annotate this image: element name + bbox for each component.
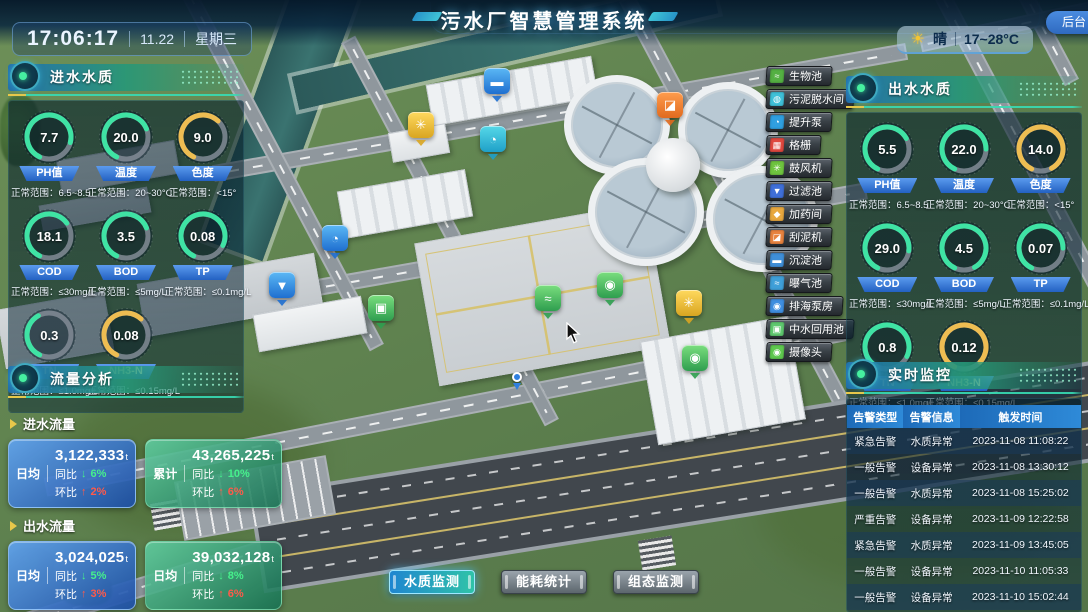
marker-scraper[interactable]: ◪ (657, 92, 683, 118)
gauge-ring: 3.5 (98, 208, 154, 264)
gauge-range: 正常范围：≤0.1mg/L (164, 284, 241, 298)
facility-button-pool[interactable]: ≈生物池 (765, 66, 832, 86)
camera-icon: ◉ (770, 345, 785, 359)
gauge-value: 22.0 (936, 121, 992, 177)
tab-能耗统计[interactable]: 能耗统计 (501, 570, 587, 594)
alarm-cell: 2023-11-10 15:02:44 (960, 584, 1081, 610)
gauge-value: 4.5 (936, 220, 992, 276)
flow-card-tag: 日均 (16, 465, 48, 482)
panel-title: 实时监控 (888, 362, 952, 389)
flow-card-tag: 日均 (16, 567, 48, 584)
marker-camera-2[interactable]: ◉ (682, 345, 708, 371)
fan-icon: ✳ (684, 295, 695, 311)
gauge-label: COD (19, 265, 79, 280)
alarm-row[interactable]: 一般告警水质异常2023-11-08 15:25:02 (847, 480, 1081, 506)
flow-mom: 环比↑2% (55, 484, 128, 500)
gauge-value: 3.5 (98, 208, 154, 264)
gauge-range: 正常范围：<15° (1002, 197, 1079, 211)
gauge-tp: 0.08TP正常范围：≤0.1mg/L (164, 208, 241, 298)
alarm-cell: 2023-11-09 13:45:05 (960, 532, 1081, 558)
flow-yoy: 同比↓8% (192, 568, 274, 584)
clock-time: 17:06:17 (27, 27, 119, 51)
gauge-range: 正常范围：≤5mg/L (926, 296, 1003, 310)
reuse-icon: ▣ (375, 300, 387, 316)
panel-header: 流量分析 (8, 366, 244, 393)
gauge-cod: 29.0COD正常范围：≤30mg/L (849, 220, 926, 310)
marker-blower-2[interactable]: ✳ (676, 290, 702, 316)
gauge-ring: 0.07 (1013, 220, 1069, 276)
flow-mom: 环比↑6% (192, 586, 274, 602)
facility-button-camera[interactable]: ◉摄像头 (765, 342, 832, 362)
pump-icon: ◔ (489, 132, 497, 147)
facility-button-fan[interactable]: ✳鼓风机 (765, 158, 832, 178)
gauge-label: 温度 (96, 166, 156, 181)
alarm-cell: 紧急告警 (847, 532, 903, 558)
facility-button-scraper[interactable]: ◪刮泥机 (765, 227, 832, 247)
scraper-icon: ◪ (770, 230, 785, 244)
alarm-cell: 2023-11-10 11:05:33 (960, 558, 1081, 584)
gauge-ring: 5.5 (859, 121, 915, 177)
facility-button-dewater[interactable]: ◍污泥脱水间 (765, 89, 854, 109)
dosing-icon: ◆ (770, 207, 785, 221)
alarm-col-header: 告警信息 (903, 405, 959, 428)
panel-title: 进水水质 (50, 64, 114, 91)
facility-button-label: 生物池 (788, 68, 822, 84)
weather-temp-range: 17~28°C (964, 31, 1019, 47)
panel-underline (846, 106, 1082, 108)
alarm-row[interactable]: 一般告警设备异常2023-11-08 13:30:12 (847, 454, 1081, 480)
title-accent-right (647, 12, 678, 21)
panel-title: 出水水质 (888, 76, 952, 103)
flow-mom: 环比↑6% (192, 484, 274, 500)
flow-yoy: 同比↓6% (55, 466, 128, 482)
gauge-range: 正常范围：≤30mg/L (849, 296, 926, 310)
facility-button-aeration[interactable]: ≈曝气池 (765, 273, 832, 293)
alarm-row[interactable]: 紧急告警水质异常2023-11-08 11:08:22 (847, 428, 1081, 454)
sedimentation-icon: ▬ (770, 253, 785, 267)
round-building (646, 138, 700, 192)
gauge-ring: 22.0 (936, 121, 992, 177)
facility-button-label: 排海泵房 (788, 298, 833, 314)
gauge-label: PH值 (19, 166, 79, 181)
alarm-cell: 设备异常 (903, 584, 959, 610)
panel-underline (8, 94, 244, 96)
dashboard: ✳▬◔◪◔▼▣≈◉✳◉ 污水厂智慧管理系统 17:06:17 11.22 星期三… (0, 0, 1088, 612)
pool-icon: ≈ (544, 291, 551, 306)
panel-underline (8, 396, 244, 398)
alarm-col-header: 触发时间 (960, 405, 1081, 428)
gauge-range: 正常范围：≤5mg/L (88, 284, 165, 298)
arrow-icon (10, 419, 17, 429)
page-title: 污水厂智慧管理系统 (441, 5, 648, 34)
gauge-value: 0.08 (98, 307, 154, 363)
alarm-cell: 一般告警 (847, 584, 903, 610)
facility-button-label: 曝气池 (788, 275, 822, 291)
flow-value: 3,024,025t (55, 549, 128, 566)
crosswalk (638, 536, 676, 571)
gauge-label: PH值 (857, 178, 917, 193)
facility-button-label: 格栅 (788, 137, 811, 153)
alarm-cell: 水质异常 (903, 480, 959, 506)
marker-filter[interactable]: ▼ (269, 272, 295, 298)
flow-group-name: 出水流量 (23, 516, 75, 535)
facility-button-label: 鼓风机 (788, 160, 822, 176)
facility-button-grid[interactable]: ▦格栅 (765, 135, 821, 155)
gauge-range: 正常范围：≤0.1mg/L (1002, 296, 1079, 310)
pump-icon: ◔ (331, 231, 339, 246)
gauge-label: COD (857, 277, 917, 292)
facility-button-label: 沉淀池 (788, 252, 822, 268)
flow-yoy: 同比↓5% (55, 568, 128, 584)
gauge-label: 温度 (934, 178, 994, 193)
alarm-cell: 水质异常 (903, 428, 959, 454)
gauge-label: TP (1011, 277, 1071, 292)
facility-button-label: 污泥脱水间 (788, 91, 844, 107)
gauge-range: 正常范围：20~30°C (926, 197, 1003, 211)
panel-emblem-icon (10, 363, 40, 393)
fan-icon: ✳ (770, 161, 785, 175)
gauge-chroma: 14.0色度正常范围：<15° (1002, 121, 1079, 211)
flow-value: 3,122,333t (55, 447, 128, 464)
gauge-value: 20.0 (98, 109, 154, 165)
tab-组态监测[interactable]: 组态监测 (613, 570, 699, 594)
camera-icon: ◉ (604, 277, 615, 293)
gauge-value: 0.08 (175, 208, 231, 264)
gauge-cod: 18.1COD正常范围：≤30mg/L (11, 208, 88, 298)
marker-camera-1[interactable]: ◉ (597, 272, 623, 298)
gauge-bod: 4.5BOD正常范围：≤5mg/L (926, 220, 1003, 310)
gauge-ring: 14.0 (1013, 121, 1069, 177)
panel-emblem-icon (10, 61, 40, 91)
flow-yoy: 同比↓10% (192, 466, 274, 482)
alarm-col-header: 告警类型 (847, 405, 903, 428)
gauge-chroma: 9.0色度正常范围：<15° (164, 109, 241, 199)
gauge-ring: 29.0 (859, 220, 915, 276)
alarm-row[interactable]: 严重告警设备异常2023-11-09 12:22:58 (847, 506, 1081, 532)
alarm-cell: 严重告警 (847, 506, 903, 532)
flow-group-label: 进水流量 (10, 414, 242, 433)
gauge-ring: 0.3 (21, 307, 77, 363)
facility-button-label: 中水回用池 (788, 321, 844, 337)
camera-icon: ◉ (689, 350, 700, 366)
alarm-row[interactable]: 一般告警设备异常2023-11-10 15:02:44 (847, 584, 1081, 610)
flow-group-label: 出水流量 (10, 516, 242, 535)
gauge-value: 5.5 (859, 121, 915, 177)
gauge-ring: 0.08 (98, 307, 154, 363)
alarm-row[interactable]: 紧急告警水质异常2023-11-09 13:45:05 (847, 532, 1081, 558)
flow-analysis-panel: 流量分析 进水流量日均3,122,333t同比↓6%环比↑2%累计43,265,… (8, 366, 244, 610)
gauge-label: 色度 (173, 166, 233, 181)
facility-button-label: 提升泵 (788, 114, 822, 130)
pool-icon: ≈ (770, 69, 785, 83)
marker-reuse[interactable]: ▣ (368, 295, 394, 321)
location-pin[interactable] (512, 372, 522, 382)
alarm-cell: 一般告警 (847, 558, 903, 584)
facility-button-pump[interactable]: ◔提升泵 (765, 112, 832, 132)
gauge-ring: 0.08 (175, 208, 231, 264)
gauge-temp: 22.0温度正常范围：20~30°C (926, 121, 1003, 211)
arrow-icon (10, 521, 17, 531)
gauge-tp: 0.07TP正常范围：≤0.1mg/L (1002, 220, 1079, 310)
gauge-range: 正常范围：6.5~8.5 (849, 197, 926, 211)
clock-date: 11.22 (140, 31, 174, 47)
facility-button-label: 过滤池 (788, 183, 822, 199)
outfall-pump-icon: ◉ (770, 299, 785, 313)
marker-bio-pool[interactable]: ≈ (535, 285, 561, 311)
clock-weekday: 星期三 (195, 29, 237, 49)
alarm-cell: 一般告警 (847, 454, 903, 480)
alarm-table: 告警类型告警信息触发时间 紧急告警水质异常2023-11-08 11:08:22… (847, 405, 1081, 610)
pump-icon: ◔ (770, 115, 785, 129)
sun-icon: ☀ (911, 29, 925, 49)
gauge-temp: 20.0温度正常范围：20~30°C (88, 109, 165, 199)
inlet-quality-panel: 进水水质 7.7PH值正常范围：6.5~8.520.0温度正常范围：20~30°… (8, 64, 244, 413)
gauge-bod: 3.5BOD正常范围：≤5mg/L (88, 208, 165, 298)
flow-card: 日均39,032,128t同比↓8%环比↑6% (145, 541, 282, 610)
panel-emblem-icon (848, 73, 878, 103)
panel-title: 流量分析 (50, 366, 114, 393)
facility-button-outfall-pump[interactable]: ◉排海泵房 (765, 296, 843, 316)
gauge-value: 29.0 (859, 220, 915, 276)
gauge-ring: 18.1 (21, 208, 77, 264)
alarm-cell: 2023-11-08 11:08:22 (960, 428, 1081, 454)
alarm-cell: 2023-11-08 13:30:12 (960, 454, 1081, 480)
panel-underline (846, 392, 1082, 394)
reuse-icon: ▣ (770, 322, 785, 336)
gauge-range: 正常范围：6.5~8.5 (11, 185, 88, 199)
flow-card-tag: 日均 (153, 567, 185, 584)
title-accent-left (411, 12, 442, 21)
weather-widget: ☀ 晴 17~28°C (897, 26, 1033, 54)
clock-widget: 17:06:17 11.22 星期三 (12, 22, 252, 56)
alarm-cell: 2023-11-09 12:22:58 (960, 506, 1081, 532)
flow-card: 日均3,122,333t同比↓6%环比↑2% (8, 439, 136, 508)
alarm-cell: 设备异常 (903, 558, 959, 584)
alarm-cell: 设备异常 (903, 454, 959, 480)
gauge-label: BOD (934, 277, 994, 292)
gauge-range: 正常范围：<15° (164, 185, 241, 199)
gauge-range: 正常范围：≤30mg/L (11, 284, 88, 298)
gauge-ring: 20.0 (98, 109, 154, 165)
gauge-ring: 4.5 (936, 220, 992, 276)
gauge-value: 9.0 (175, 109, 231, 165)
gauge-label: 色度 (1011, 178, 1071, 193)
facility-button-label: 刮泥机 (788, 229, 822, 245)
realtime-monitor-panel: 实时监控 告警类型告警信息触发时间 紧急告警水质异常2023-11-08 11:… (846, 362, 1082, 612)
flow-mom: 环比↑3% (55, 586, 128, 602)
gauge-ph: 7.7PH值正常范围：6.5~8.5 (11, 109, 88, 199)
alarm-cell: 设备异常 (903, 506, 959, 532)
gauge-value: 18.1 (21, 208, 77, 264)
dewater-icon: ◍ (770, 92, 785, 106)
filter-icon: ▼ (770, 184, 785, 198)
panel-header: 进水水质 (8, 64, 244, 91)
panel-header: 实时监控 (846, 362, 1082, 389)
alarm-cell: 水质异常 (903, 532, 959, 558)
scraper-icon: ◪ (664, 97, 676, 113)
admin-button[interactable]: 后台 (1046, 11, 1088, 34)
gauge-value: 0.07 (1013, 220, 1069, 276)
divider (129, 31, 130, 47)
flow-group-name: 进水流量 (23, 414, 75, 433)
panel-header: 出水水质 (846, 76, 1082, 103)
gauge-value: 7.7 (21, 109, 77, 165)
tab-水质监测[interactable]: 水质监测 (389, 570, 475, 594)
gauge-range: 正常范围：20~30°C (88, 185, 165, 199)
alarm-cell: 紧急告警 (847, 428, 903, 454)
marker-lift-pump[interactable]: ◔ (322, 225, 348, 251)
fan-icon: ✳ (416, 117, 427, 133)
aeration-icon: ≈ (770, 276, 785, 290)
flow-value: 39,032,128t (192, 549, 274, 566)
gauge-value: 14.0 (1013, 121, 1069, 177)
alarm-cell: 一般告警 (847, 480, 903, 506)
gauge-label: BOD (96, 265, 156, 280)
marker-dewater[interactable]: ◔ (480, 126, 506, 152)
panel-emblem-icon (848, 359, 878, 389)
flow-card: 累计43,265,225t同比↓10%环比↑6% (145, 439, 282, 508)
grid-icon: ▦ (770, 138, 785, 152)
facility-button-label: 加药间 (788, 206, 822, 222)
facility-button-filter[interactable]: ▼过滤池 (765, 181, 832, 201)
gauge-value: 0.3 (21, 307, 77, 363)
weather-condition: 晴 (933, 29, 947, 49)
facility-button-dosing[interactable]: ◆加药间 (765, 204, 832, 224)
gauge-ph: 5.5PH值正常范围：6.5~8.5 (849, 121, 926, 211)
flow-value: 43,265,225t (192, 447, 274, 464)
marker-sedimentation[interactable]: ▬ (484, 68, 510, 94)
marker-blower-1[interactable]: ✳ (408, 112, 434, 138)
divider (184, 31, 185, 47)
gauge-label: TP (173, 265, 233, 280)
tank-icon: ▬ (491, 74, 504, 89)
funnel-icon: ▼ (276, 278, 289, 293)
divider (955, 32, 956, 46)
alarm-row[interactable]: 一般告警设备异常2023-11-10 11:05:33 (847, 558, 1081, 584)
gauge-ring: 7.7 (21, 109, 77, 165)
alarm-cell: 2023-11-08 15:25:02 (960, 480, 1081, 506)
facility-button-label: 摄像头 (788, 344, 822, 360)
flow-card: 日均3,024,025t同比↓5%环比↑3% (8, 541, 136, 610)
gauge-ring: 9.0 (175, 109, 231, 165)
facility-button-reuse[interactable]: ▣中水回用池 (765, 319, 854, 339)
facility-button-sedimentation[interactable]: ▬沉淀池 (765, 250, 832, 270)
flow-card-tag: 累计 (153, 465, 185, 482)
